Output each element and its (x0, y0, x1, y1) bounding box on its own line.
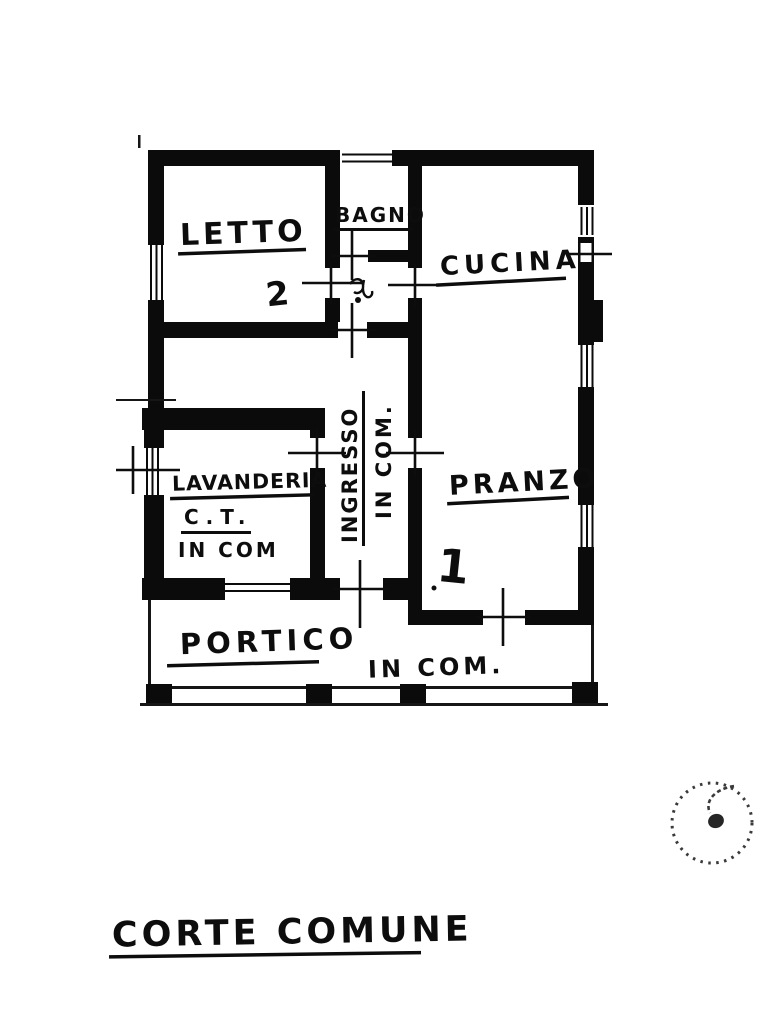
pranzo-label: PRANZO (448, 463, 600, 502)
floor-plan-drawing: LETTO 2 BAGNO CUCINA PRANZO 1 C.T. LAVAN… (0, 0, 769, 1024)
ingresso-label: INGRESSO (338, 407, 362, 543)
lavanderia-note: IN COM (178, 538, 279, 562)
pranzo-number-dot (432, 586, 437, 591)
ingresso-underline (362, 391, 365, 546)
letto-number: 2 (264, 273, 291, 314)
portico-underline (167, 660, 319, 667)
ingresso-note: IN COM. (372, 403, 396, 519)
lavanderia-room-label: LAVANDERIA (172, 468, 328, 496)
bagno-label: BAGNO (335, 203, 426, 227)
stamp-circle-mark (672, 783, 752, 863)
lavanderia-label: C.T. (184, 505, 252, 529)
cucina-label: CUCINA (439, 245, 581, 282)
portico-label: PORTICO (179, 621, 359, 661)
corner-tick (138, 135, 141, 148)
ct-underline (181, 531, 251, 534)
scanned-floor-plan-page: LETTO 2 BAGNO CUCINA PRANZO 1 C.T. LAVAN… (0, 0, 769, 1024)
caption: CORTE COMUNE (109, 909, 473, 958)
letto-label: LETTO (179, 214, 307, 253)
pranzo-number: 1 (435, 538, 472, 595)
caption-text: CORTE COMUNE (112, 909, 473, 955)
bagno-underline (333, 228, 413, 231)
portico-note: IN COM. (368, 651, 505, 684)
